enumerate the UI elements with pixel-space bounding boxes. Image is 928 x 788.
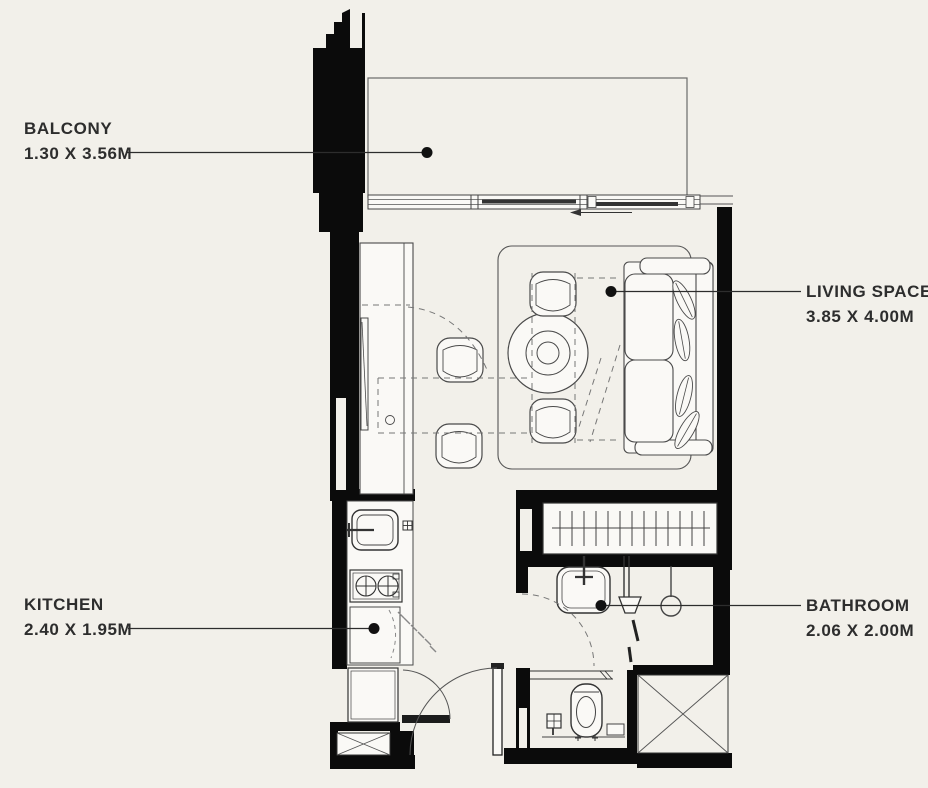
bathroom-label-dimensions: 2.06 X 2.00M <box>806 618 914 643</box>
kitchen-label-name: KITCHEN <box>24 592 132 617</box>
media-counter-unit <box>360 243 413 494</box>
kitchen-counter <box>350 607 400 663</box>
slide-direction-arrow <box>570 209 632 216</box>
floor-plan-drawing <box>0 0 928 788</box>
bidet-spray-box <box>547 714 561 735</box>
dining-table <box>508 313 588 393</box>
chair <box>530 272 576 316</box>
toilet-shelf <box>607 724 624 735</box>
balcony-label: BALCONY 1.30 X 3.56M <box>24 116 132 166</box>
stove <box>350 570 402 602</box>
kitchen-label: KITCHEN 2.40 X 1.95M <box>24 592 132 642</box>
entry-doors <box>402 663 504 755</box>
living-space-label-name: LIVING SPACE <box>806 279 928 304</box>
shaft-x-box-right <box>638 675 728 753</box>
bathroom-label: BATHROOM 2.06 X 2.00M <box>806 593 914 643</box>
floor-plan: BALCONY 1.30 X 3.56M LIVING SPACE 3.85 X… <box>0 0 928 788</box>
wall-tower-top <box>326 9 350 48</box>
chair <box>436 424 482 468</box>
entrance-door <box>410 663 504 755</box>
shaft-x-box-left <box>337 733 390 755</box>
living-space-label-dimensions: 3.85 X 4.00M <box>806 304 928 329</box>
balcony-outline <box>368 78 687 197</box>
sofa <box>624 258 713 455</box>
counter-handle <box>403 521 412 530</box>
shower <box>619 556 681 662</box>
closet-door <box>402 670 450 723</box>
living-space-label: LIVING SPACE 3.85 X 4.00M <box>806 279 928 329</box>
balcony-label-dimensions: 1.30 X 3.56M <box>24 141 132 166</box>
balcony-sliding-window <box>368 195 733 209</box>
kitchen-sink <box>347 510 398 550</box>
bathroom-label-name: BATHROOM <box>806 593 914 618</box>
kitchen-cabinet <box>348 668 398 722</box>
balcony-area <box>368 78 733 216</box>
chair <box>437 338 483 382</box>
chair <box>530 399 576 443</box>
balcony-label-name: BALCONY <box>24 116 132 141</box>
wardrobe <box>543 503 717 554</box>
kitchen-area <box>347 501 436 722</box>
kitchen-label-dimensions: 2.40 X 1.95M <box>24 617 132 642</box>
living-area <box>362 246 713 469</box>
